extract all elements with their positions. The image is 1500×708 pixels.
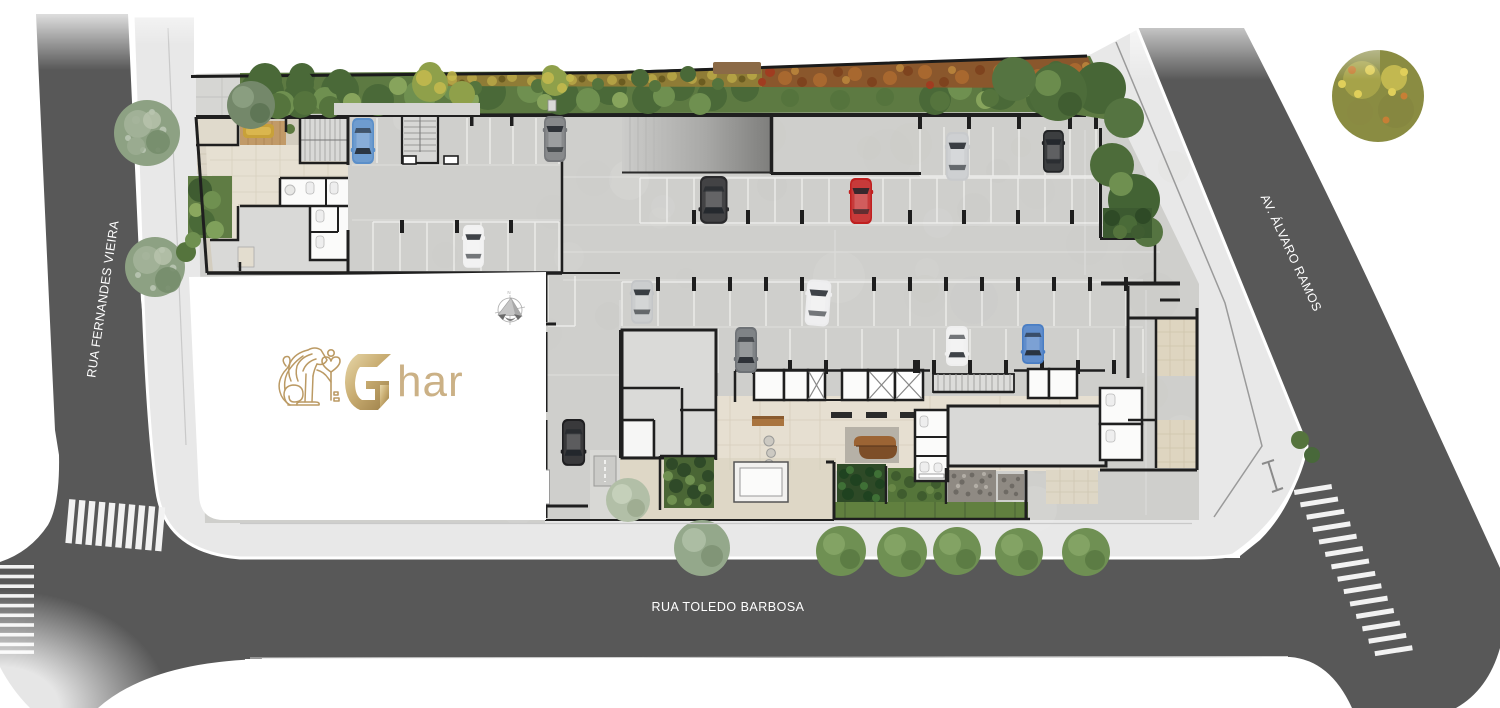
svg-text:RUA TOLEDO BARBOSA: RUA TOLEDO BARBOSA bbox=[651, 600, 804, 614]
svg-text:N: N bbox=[507, 290, 510, 295]
svg-text:har: har bbox=[397, 357, 464, 406]
